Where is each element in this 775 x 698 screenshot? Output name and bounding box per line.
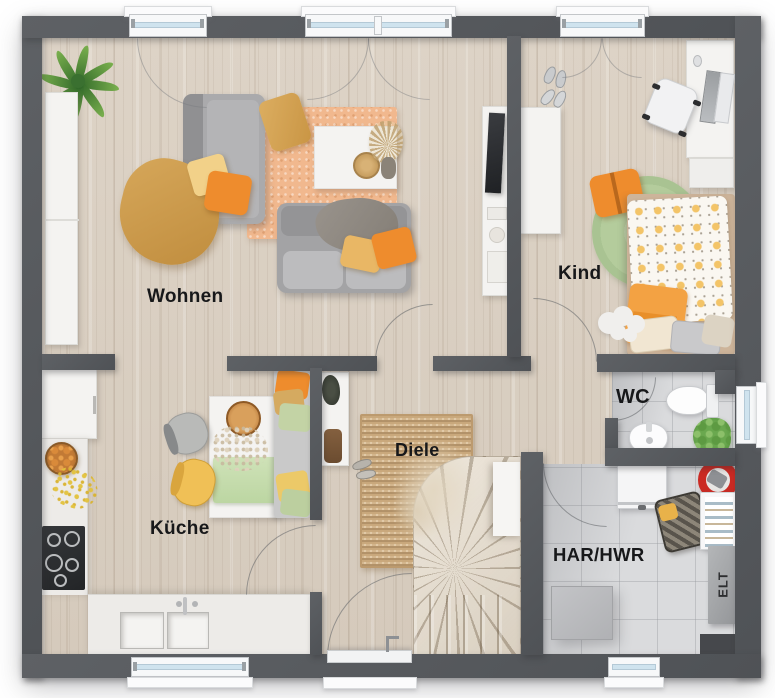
- window-glass: [133, 22, 203, 28]
- diele-slippers: [352, 460, 382, 482]
- fridge: [40, 369, 97, 439]
- burner: [45, 554, 63, 572]
- cabinet-divider: [46, 219, 79, 221]
- window-hinge: [242, 662, 246, 671]
- deco-dark-plant: [322, 375, 340, 405]
- wall-har-left: [521, 452, 543, 655]
- deco-books: [487, 207, 507, 220]
- sink-faucet: [646, 422, 652, 432]
- fridge-handle: [93, 396, 96, 414]
- window-hinge: [131, 19, 135, 28]
- window-hinge: [307, 19, 311, 28]
- stove-cooktop: [42, 526, 85, 590]
- window-sill: [756, 382, 767, 448]
- window-glass: [744, 390, 750, 440]
- window-glass: [135, 664, 245, 670]
- kind-bed: [627, 194, 735, 355]
- window-hinge: [200, 19, 204, 28]
- room-label-kind: Kind: [558, 263, 601, 285]
- burner: [54, 574, 67, 587]
- har-shelf: [700, 492, 737, 550]
- flower-bouquet: [212, 425, 268, 471]
- elt-label: ELT: [716, 554, 731, 616]
- washer-knob: [638, 505, 646, 510]
- kitchen-counter-bottom: [88, 594, 310, 656]
- wall-wc-right-stub: [715, 370, 735, 394]
- wall-mid-2: [433, 356, 531, 371]
- bench-pillow-green2: [280, 488, 313, 517]
- chair-armrest: [652, 83, 661, 91]
- tv-screen: [485, 113, 505, 194]
- room-label-kueche: Küche: [150, 518, 210, 540]
- wall-kueche-right-upper: [310, 368, 322, 520]
- bench-pillow-green: [278, 403, 312, 433]
- window-sill: [127, 677, 253, 688]
- window-hinge: [133, 662, 137, 671]
- sofa-seat-left: [283, 251, 343, 289]
- desk-mouse: [693, 55, 702, 67]
- kitchen-bench: [274, 368, 311, 518]
- bucket-tools: [706, 468, 729, 489]
- window-hinge: [562, 19, 566, 28]
- wall-mid-stub-left: [42, 354, 115, 370]
- gray-storage-cube: [551, 586, 613, 640]
- wall-outer-right: [735, 16, 761, 678]
- wall-wohnen-kind: [507, 36, 521, 357]
- kind-desk-return: [689, 158, 734, 188]
- entrance-door-handle-bar: [386, 636, 399, 639]
- stair-landing: [493, 462, 521, 536]
- laundry-cloth: [658, 502, 679, 522]
- room-label-har-hwr: HAR/HWR: [553, 544, 645, 566]
- stair-bottom-flight: [414, 595, 506, 658]
- burner: [47, 533, 61, 547]
- bed-pillow-3: [701, 314, 736, 349]
- faucet-knob: [176, 601, 182, 607]
- entrance-threshold: [323, 677, 417, 689]
- sink-drain: [646, 437, 653, 444]
- window-mullion: [374, 16, 382, 35]
- kitchen-table: [209, 396, 280, 518]
- pillow-orange-chaise: [203, 170, 253, 216]
- burner: [64, 531, 80, 547]
- sink-left: [120, 612, 164, 649]
- palm-center: [71, 74, 85, 88]
- toilet-bowl: [666, 386, 708, 415]
- deco-candle: [489, 227, 505, 243]
- coffee-table: [314, 126, 397, 189]
- slipper: [355, 468, 376, 480]
- folded-towels: [705, 497, 733, 547]
- deco-stack: [487, 251, 508, 283]
- faucet-knob: [192, 601, 198, 607]
- window-hinge: [445, 19, 449, 28]
- cloud-rug: [598, 312, 620, 334]
- faucet: [183, 597, 187, 615]
- room-label-wc: WC: [616, 386, 650, 409]
- room-label-diele: Diele: [395, 440, 440, 461]
- elt-panel: ELT: [708, 546, 738, 624]
- kind-wardrobe: [520, 107, 561, 234]
- sink-right: [167, 612, 209, 649]
- entrance-door-leaf: [327, 650, 412, 663]
- floor-plan: ELT: [0, 0, 775, 698]
- deco-bag: [324, 429, 342, 463]
- window-glass: [564, 22, 641, 28]
- wall-wc-har: [605, 448, 735, 466]
- wall-kueche-right-lower: [310, 592, 322, 655]
- diele-sideboard: [319, 372, 349, 466]
- vase: [381, 157, 396, 179]
- window-hinge: [638, 19, 642, 28]
- wohnen-cabinet: [45, 92, 78, 345]
- window-glass: [612, 664, 656, 670]
- room-label-wohnen: Wohnen: [147, 286, 223, 308]
- toilet: [666, 384, 720, 418]
- wall-outer-left: [22, 16, 42, 678]
- wall-mid-1: [227, 356, 377, 371]
- burner: [65, 558, 79, 572]
- pillow-strap: [610, 172, 623, 214]
- window-sill: [604, 677, 664, 688]
